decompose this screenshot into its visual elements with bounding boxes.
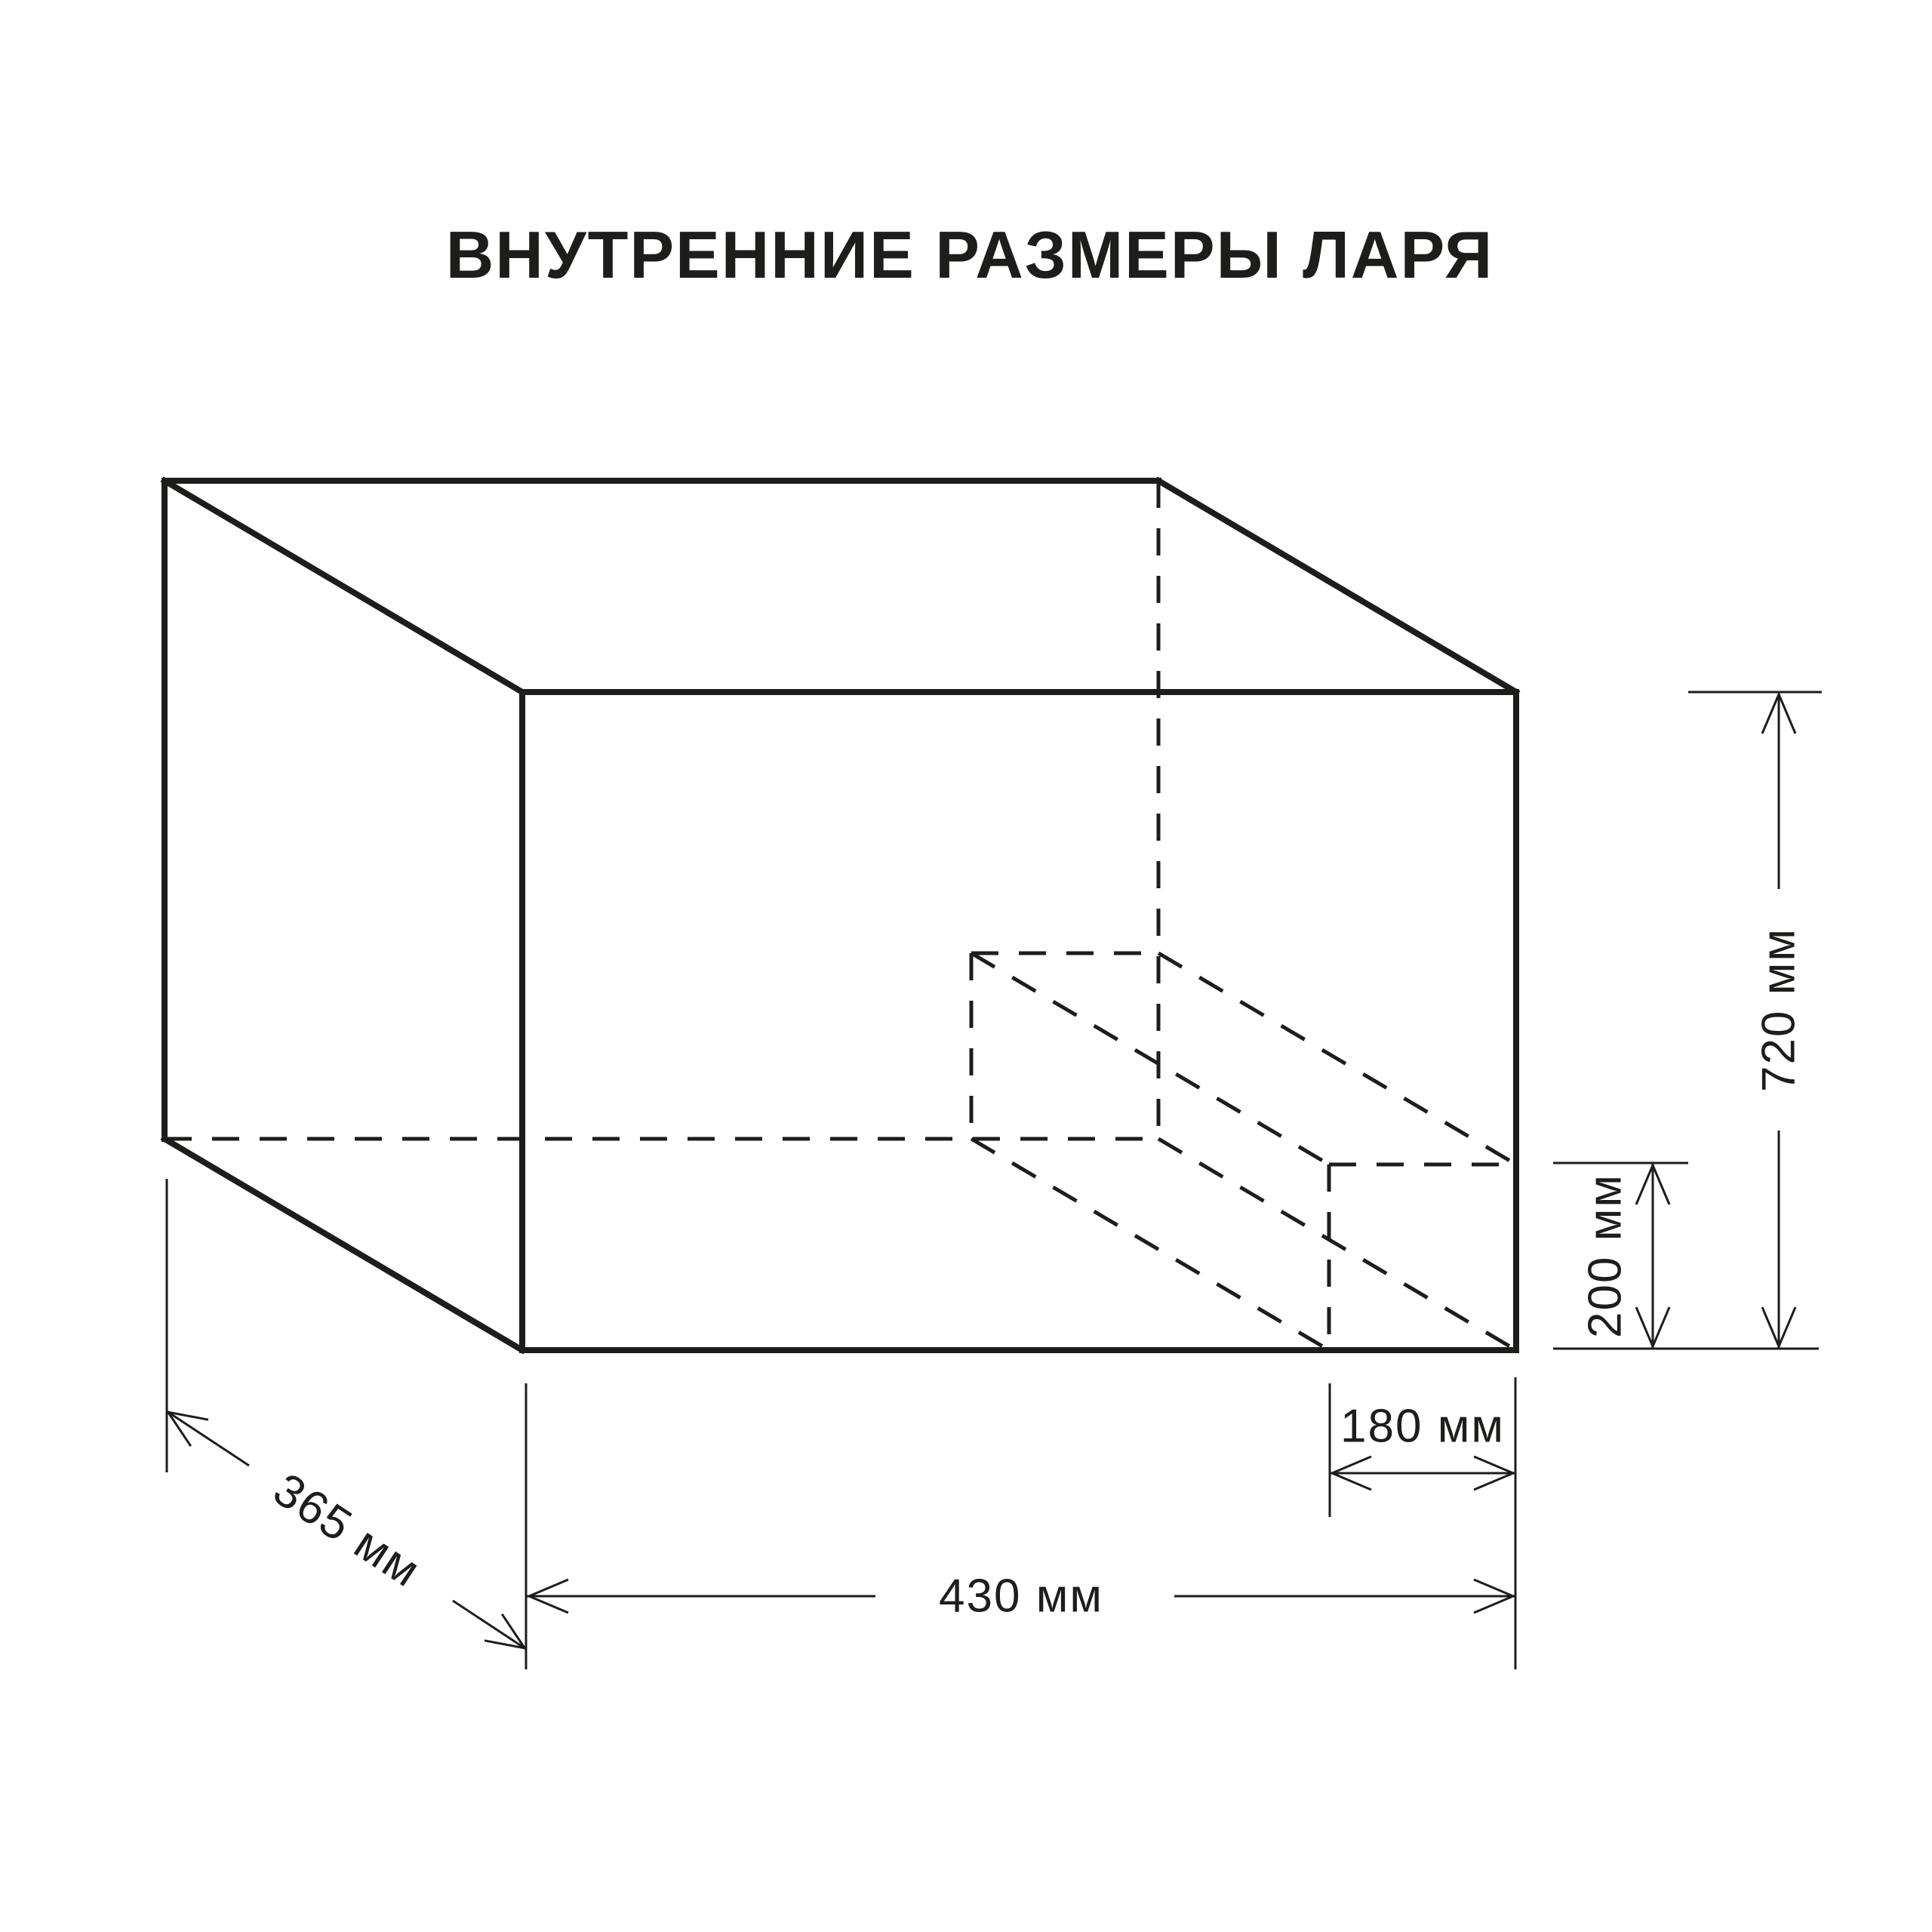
dim-label-step-width: 180 мм — [1340, 1401, 1505, 1453]
dimension-step-width-180: 180 мм — [1330, 1401, 1515, 1491]
back-top-and-left-edges — [165, 481, 1158, 1139]
hidden-edges — [165, 481, 1516, 1350]
dim-label-height: 720 мм — [1753, 928, 1805, 1092]
page-title: ВНУТРЕННИЕ РАЗМЕРЫ ЛАРЯ — [446, 217, 1494, 292]
diagram-canvas: ВНУТРЕННИЕ РАЗМЕРЫ ЛАРЯ — [0, 0, 1932, 1932]
dimension-height-720: 720 мм — [1753, 692, 1805, 1349]
extension-lines — [167, 692, 1822, 1669]
bottom-left-depth-edge — [165, 1139, 522, 1350]
step-top-left-depth-edge — [971, 953, 1329, 1164]
freezer-interior-dimensions-diagram: ВНУТРЕННИЕ РАЗМЕРЫ ЛАРЯ — [0, 0, 1932, 1932]
top-left-depth-edge — [165, 481, 522, 692]
step-bottom-left-depth-edge — [971, 1139, 1329, 1350]
dim-label-depth: 365 мм — [264, 1463, 430, 1598]
dimension-step-height-200: 200 мм — [1580, 1163, 1670, 1349]
compressor-step — [971, 953, 1516, 1350]
top-right-depth-edge — [1158, 481, 1516, 692]
bottom-right-hidden-depth-edge — [1158, 1139, 1516, 1350]
dim-label-width: 430 мм — [939, 1571, 1103, 1623]
front-opening-rect — [522, 692, 1516, 1350]
dimension-width-430: 430 мм — [527, 1571, 1515, 1623]
dimension-depth-365: 365 мм — [167, 1411, 526, 1649]
chest-wireframe — [165, 481, 1516, 1350]
dim-label-step-height: 200 мм — [1580, 1174, 1632, 1338]
step-top-right-depth-edge — [1158, 953, 1516, 1164]
